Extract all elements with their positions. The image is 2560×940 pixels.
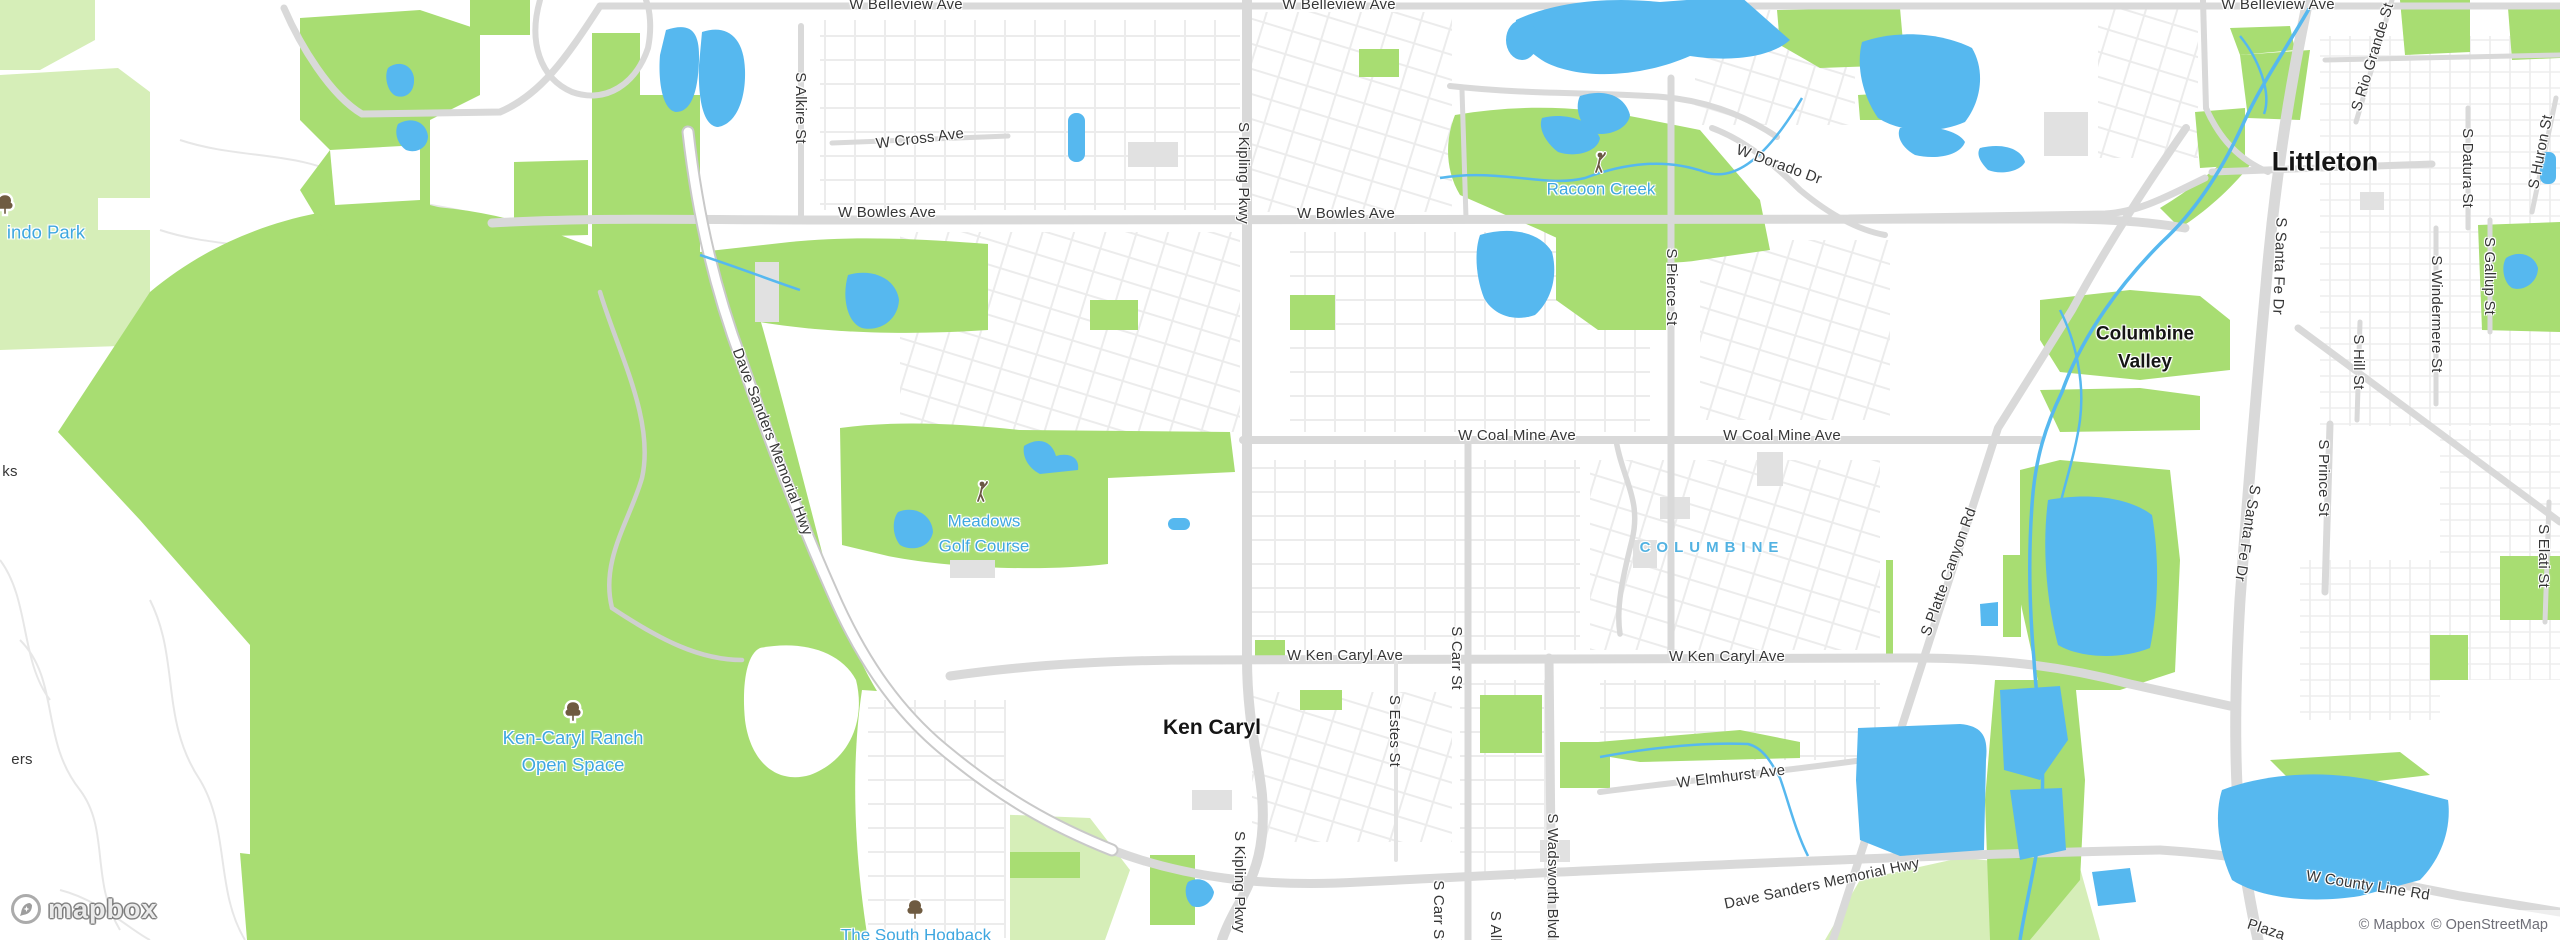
golfer-icon <box>1589 151 1611 180</box>
town-label: Ken Caryl <box>1163 713 1261 743</box>
street-label: W Ken Caryl Ave <box>1669 646 1785 668</box>
mapbox-logo-text: mapbox <box>48 894 158 925</box>
street-label: W Coal Mine Ave <box>1723 425 1841 447</box>
street-label: W County Line Rd <box>2305 865 2432 906</box>
attribution-mapbox-link[interactable]: © Mapbox <box>2359 917 2425 933</box>
street-label: Dave Sanders Memorial Hwy <box>726 345 818 539</box>
tree-icon <box>903 898 927 929</box>
town-label: Columbine Valley <box>2096 320 2194 375</box>
street-label: S Elati St <box>2532 524 2554 588</box>
street-label: W Cross Ave <box>875 123 966 155</box>
street-label: W Bowles Ave <box>838 202 936 224</box>
street-label: W Elmhurst Ave <box>1675 760 1786 795</box>
water-area-label: Racoon Creek <box>1547 178 1656 203</box>
street-label: S Platte Canyon Rd <box>1916 505 1983 640</box>
mapbox-logo[interactable]: mapbox <box>10 893 158 925</box>
water-area-label: indo Park <box>7 220 85 247</box>
street-label: S Estes St <box>1383 695 1405 767</box>
street-label: W Belleview Ave <box>849 0 963 16</box>
street-label: Dave Sanders Memorial Hwy <box>1722 853 1921 916</box>
street-label: S Huron St <box>2523 113 2559 191</box>
street-label: W Ken Caryl Ave <box>1287 645 1403 667</box>
street-label: ks <box>2 461 17 483</box>
street-label: S Rio Grande St <box>2346 0 2400 114</box>
attribution-osm-link[interactable]: © OpenStreetMap <box>2431 917 2548 933</box>
street-label: W Coal Mine Ave <box>1458 425 1576 447</box>
water-area-label: Meadows Golf Course <box>939 509 1030 558</box>
street-label: S Kipling Pkwy <box>1228 831 1250 933</box>
street-label: W Dorado Dr <box>1733 139 1825 190</box>
attribution-bar: © Mapbox © OpenStreetMap <box>2347 910 2560 940</box>
tree-icon <box>561 700 585 731</box>
street-label: S Prince St <box>2312 439 2334 516</box>
map-labels-layer: W Belleview AveW Belleview AveW Bellevie… <box>0 0 2560 940</box>
tree-icon <box>0 193 17 224</box>
street-label: W Bowles Ave <box>1297 203 1395 225</box>
street-label: W Belleview Ave <box>1282 0 1396 16</box>
street-label: W Belleview Ave <box>2221 0 2335 16</box>
street-label: S Windermere St <box>2425 255 2447 372</box>
golfer-icon <box>971 480 993 509</box>
street-label: S Santa Fe Dr <box>2229 483 2266 583</box>
street-label: S Hill St <box>2347 334 2369 389</box>
street-label: S Santa Fe Dr <box>2266 217 2291 315</box>
map-canvas[interactable]: W Belleview AveW Belleview AveW Bellevie… <box>0 0 2560 940</box>
neighborhood-label: COLUMBINE <box>1640 537 1785 559</box>
street-label: S Datura St <box>2456 128 2478 208</box>
water-area-label: The South Hogback <box>841 924 991 940</box>
street-label: S Carr St <box>1445 626 1467 689</box>
street-label: S Pierce St <box>1660 248 1682 325</box>
water-area-label: Ken-Caryl Ranch Open Space <box>503 725 644 779</box>
mapbox-logo-icon <box>10 893 42 925</box>
street-label: S Kipling Pkwy <box>1232 122 1254 224</box>
street-label: ers <box>11 749 32 771</box>
street-label: Plaza <box>2244 914 2287 940</box>
city-label: Littleton <box>2272 142 2378 181</box>
street-label: S Alkire St <box>789 72 811 143</box>
street-label: S Gallup St <box>2478 237 2500 315</box>
street-label: S Carr St <box>1427 880 1449 940</box>
street-label: S Wadsworth Blvd <box>1541 813 1563 938</box>
street-label: S Allison St <box>1484 911 1506 940</box>
